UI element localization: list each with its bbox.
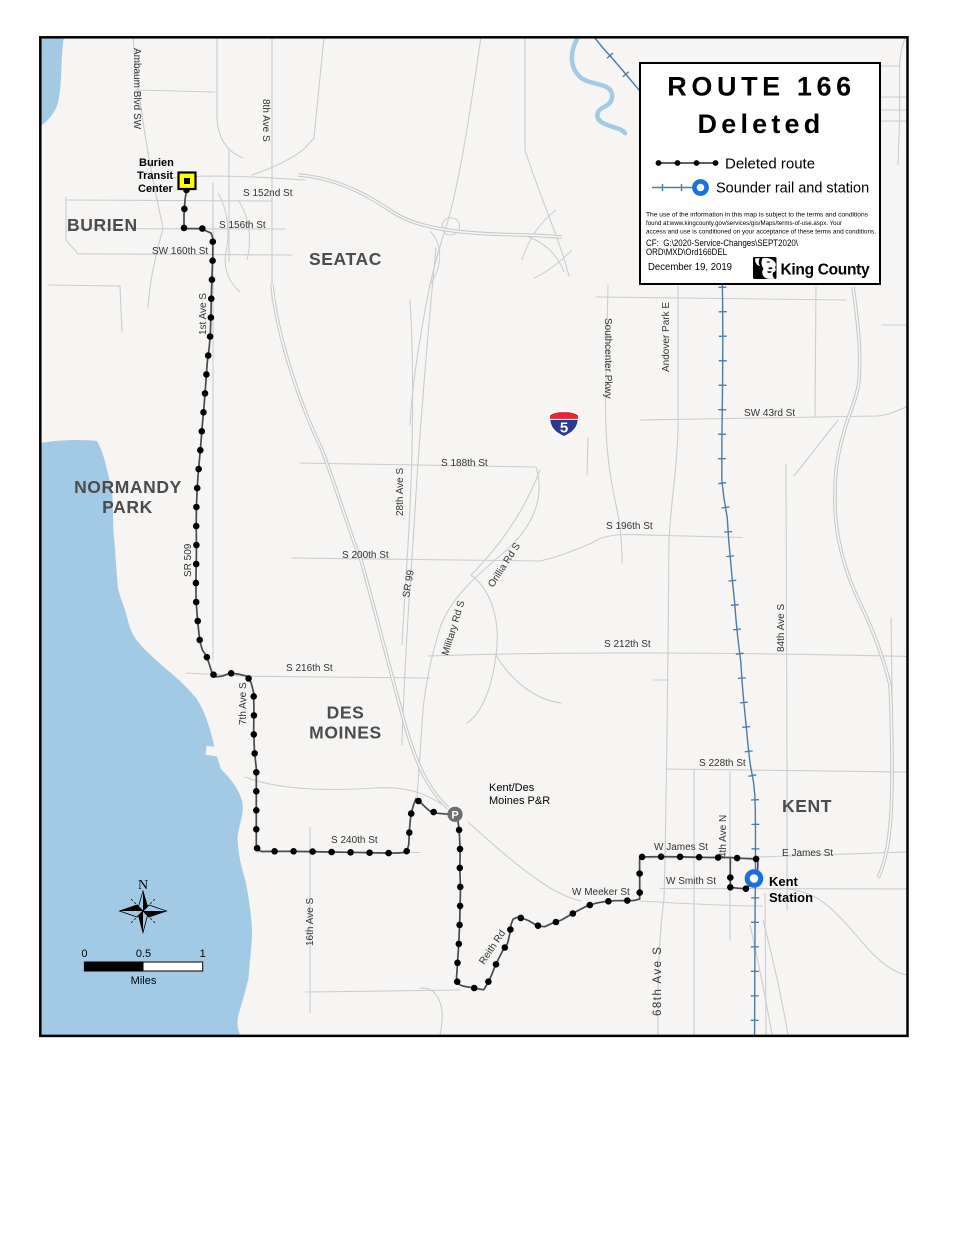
svg-text:ORD\MXD\Ord166DEL: ORD\MXD\Ord166DEL xyxy=(646,247,727,257)
svg-text:SR 509: SR 509 xyxy=(183,543,194,577)
svg-text:Andover Park E: Andover Park E xyxy=(661,302,672,372)
svg-text:S 216th St: S 216th St xyxy=(286,663,333,674)
svg-text:S 188th St: S 188th St xyxy=(441,458,488,469)
svg-text:W Smith St: W Smith St xyxy=(666,876,716,887)
svg-text:Station: Station xyxy=(769,890,813,905)
svg-text:Center: Center xyxy=(138,183,174,195)
svg-text:KENT: KENT xyxy=(782,796,832,816)
svg-text:7th Ave S: 7th Ave S xyxy=(238,682,249,725)
svg-text:Deleted: Deleted xyxy=(698,109,825,139)
svg-text:S 196th St: S 196th St xyxy=(606,521,653,532)
svg-text:84th Ave S: 84th Ave S xyxy=(776,603,787,652)
svg-text:28th Ave S: 28th Ave S xyxy=(395,467,406,516)
svg-text:S 240th St: S 240th St xyxy=(331,835,378,846)
svg-text:MOINES: MOINES xyxy=(309,723,382,743)
svg-text:Deleted route: Deleted route xyxy=(725,156,815,173)
svg-text:BURIEN: BURIEN xyxy=(67,215,138,235)
svg-text:Ambaum Blvd SW: Ambaum Blvd SW xyxy=(131,48,142,130)
svg-text:8th Ave S: 8th Ave S xyxy=(260,99,271,142)
svg-text:W Meeker St: W Meeker St xyxy=(572,887,630,898)
svg-text:PARK: PARK xyxy=(102,497,153,517)
svg-text:December 19, 2019: December 19, 2019 xyxy=(648,261,732,273)
svg-text:E James St: E James St xyxy=(782,848,833,859)
svg-text:S 228th St: S 228th St xyxy=(699,758,746,769)
svg-text:S 152nd St: S 152nd St xyxy=(243,188,293,199)
svg-text:0: 0 xyxy=(81,948,87,960)
svg-text:access and use is conditioned: access and use is conditioned on your ac… xyxy=(646,229,876,236)
svg-text:68th Ave S: 68th Ave S xyxy=(652,946,664,1016)
svg-text:Kent: Kent xyxy=(769,874,799,889)
svg-text:16th Ave S: 16th Ave S xyxy=(305,897,316,946)
svg-text:SW 43rd St: SW 43rd St xyxy=(744,408,795,419)
svg-text:Moines P&R: Moines P&R xyxy=(489,795,550,807)
svg-text:found at:www.kingcounty.gov/se: found at:www.kingcounty.gov/services/gis… xyxy=(646,220,843,227)
svg-text:1: 1 xyxy=(200,948,206,960)
svg-text:SW 160th St: SW 160th St xyxy=(152,246,208,257)
svg-text:Kent/Des: Kent/Des xyxy=(489,782,535,794)
svg-text:1st Ave S: 1st Ave S xyxy=(198,293,209,335)
svg-text:King County: King County xyxy=(781,262,871,279)
svg-text:S 212th St: S 212th St xyxy=(604,639,651,650)
svg-text:S 156th St: S 156th St xyxy=(219,220,266,231)
svg-text:Southcenter Pkwy: Southcenter Pkwy xyxy=(602,318,613,399)
svg-text:NORMANDY: NORMANDY xyxy=(74,477,182,497)
svg-text:SEATAC: SEATAC xyxy=(309,249,382,269)
svg-text:Burien: Burien xyxy=(139,157,174,169)
svg-text:DES: DES xyxy=(327,703,365,723)
svg-text:5: 5 xyxy=(560,420,568,437)
svg-text:The use of the information in: The use of the information in this map i… xyxy=(646,212,869,219)
svg-text:ROUTE 166: ROUTE 166 xyxy=(667,72,855,102)
svg-text:Miles: Miles xyxy=(131,975,157,987)
svg-text:0.5: 0.5 xyxy=(136,948,151,960)
svg-text:W James St: W James St xyxy=(654,842,708,853)
svg-text:P: P xyxy=(451,809,458,821)
svg-text:S 200th St: S 200th St xyxy=(342,550,389,561)
svg-text:Transit: Transit xyxy=(137,170,173,182)
svg-text:4th Ave N: 4th Ave N xyxy=(718,815,729,858)
svg-text:Sounder rail and station: Sounder rail and station xyxy=(716,181,869,197)
